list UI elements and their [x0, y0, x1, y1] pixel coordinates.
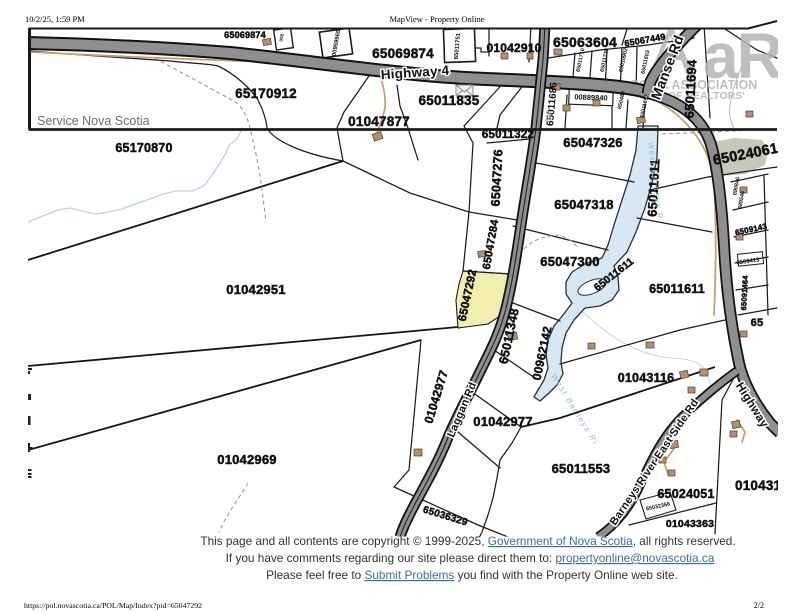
svg-text:65032366: 65032366 [646, 501, 671, 512]
svg-text:West Barneys Ri: West Barneys Ri [549, 372, 600, 446]
svg-text:65011611: 65011611 [649, 282, 705, 296]
svg-text:6509143: 6509143 [734, 222, 768, 238]
svg-text:65047276: 65047276 [489, 149, 506, 207]
svg-text:65010902: 65010902 [618, 48, 629, 73]
svg-text:2/2: 2/2 [754, 601, 764, 610]
svg-text:65011553: 65011553 [552, 461, 611, 476]
svg-text:65091464: 65091464 [739, 275, 750, 311]
svg-text:01047877: 01047877 [348, 114, 410, 129]
svg-text:65170912: 65170912 [235, 86, 297, 101]
svg-text:65011738: 65011738 [600, 48, 611, 73]
svg-text:01042977: 01042977 [421, 368, 451, 425]
svg-text:65047326: 65047326 [563, 135, 622, 150]
svg-text:If you have comments regarding: If you have comments regarding our site … [226, 551, 715, 565]
svg-text:00889840: 00889840 [574, 92, 608, 102]
svg-text:01042910: 01042910 [487, 41, 542, 55]
svg-text:65: 65 [751, 317, 764, 329]
svg-text:65036329: 65036329 [421, 505, 469, 529]
svg-text:Service Nova Scotia: Service Nova Scotia [37, 114, 150, 128]
svg-text:01042977: 01042977 [473, 414, 532, 429]
svg-text:650: 650 [545, 110, 553, 122]
svg-text:65011694: 65011694 [681, 59, 699, 119]
svg-text:Laggan Rd: Laggan Rd [445, 380, 479, 439]
svg-text:MapView - Property Online: MapView - Property Online [389, 14, 484, 24]
svg-text:65011835: 65011835 [419, 93, 480, 108]
svg-text:01043363: 01043363 [666, 518, 714, 530]
svg-text:Please feel free to Submit Pro: Please feel free to Submit Problems you … [266, 568, 678, 582]
svg-text:010431: 010431 [735, 478, 782, 493]
svg-text:This page and all contents are: This page and all contents are copyright… [200, 534, 735, 548]
svg-text:65047300: 65047300 [540, 254, 599, 269]
svg-text:65047284: 65047284 [481, 218, 502, 271]
svg-text:65063604: 65063604 [553, 34, 617, 50]
svg-text:https://pol.novascotia.ca/POL/: https://pol.novascotia.ca/POL/Map/Index?… [24, 601, 202, 610]
svg-text:65069874: 65069874 [224, 30, 266, 40]
svg-text:65011710: 65011710 [576, 48, 587, 73]
svg-text:65047318: 65047318 [554, 197, 613, 212]
svg-text:65170870: 65170870 [115, 141, 172, 155]
svg-text:01043116: 01043116 [618, 371, 675, 385]
svg-text:08: 08 [460, 79, 465, 84]
svg-text:65069874: 65069874 [372, 46, 434, 61]
svg-text:01042951: 01042951 [226, 282, 285, 297]
svg-text:65024051: 65024051 [657, 487, 714, 501]
svg-text:65067449: 65067449 [624, 31, 667, 48]
svg-text:01042969: 01042969 [217, 452, 276, 467]
svg-text:10/2/25, 1:59 PM: 10/2/25, 1:59 PM [25, 14, 85, 24]
